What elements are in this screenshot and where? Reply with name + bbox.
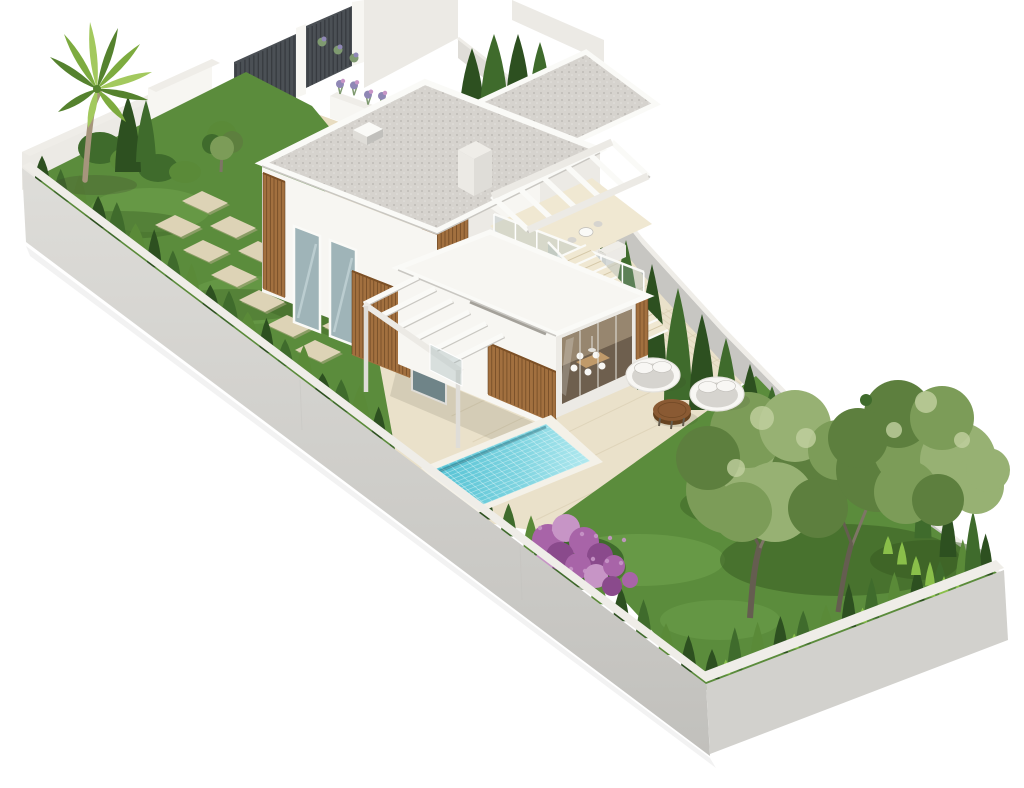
pergola-slat bbox=[612, 142, 648, 176]
flower-cluster bbox=[602, 576, 622, 596]
flower-dot bbox=[591, 557, 595, 561]
flower-dot bbox=[605, 559, 609, 563]
chimney bbox=[458, 141, 492, 196]
canopy-highlight bbox=[727, 459, 745, 477]
dining-chair bbox=[571, 365, 578, 372]
canopy-blob bbox=[788, 478, 848, 538]
plant-behind-fence bbox=[354, 53, 359, 58]
dining-chair bbox=[599, 363, 606, 370]
tall-boundary-wall bbox=[364, 0, 458, 88]
flower-dot bbox=[583, 569, 587, 573]
lawn-highlight bbox=[660, 600, 780, 640]
canopy-blob bbox=[676, 426, 740, 490]
garden-bush bbox=[169, 161, 201, 183]
dining-chair bbox=[585, 369, 592, 376]
daybed-pillow bbox=[635, 363, 654, 374]
plant-behind-fence bbox=[322, 37, 327, 42]
canopy-highlight bbox=[886, 422, 902, 438]
lavender-bloom bbox=[355, 80, 359, 84]
flower-dot bbox=[594, 534, 598, 538]
flower-dot bbox=[622, 538, 626, 542]
table-leg bbox=[671, 421, 672, 429]
flower-cluster bbox=[603, 555, 625, 577]
flower-dot bbox=[608, 536, 612, 540]
canopy-blob bbox=[828, 408, 888, 468]
lavender-bloom bbox=[341, 79, 345, 83]
small-tree-crown bbox=[210, 136, 234, 160]
flower-dot bbox=[538, 526, 542, 530]
terrace-chair bbox=[594, 221, 603, 227]
canopy-highlight bbox=[796, 428, 816, 448]
canopy-blob bbox=[966, 448, 1010, 492]
daybed-pillow bbox=[717, 381, 736, 392]
potted-plant bbox=[860, 394, 872, 406]
isometric-villa-render bbox=[0, 0, 1024, 788]
flower-dot bbox=[552, 528, 556, 532]
canopy-highlight bbox=[954, 432, 970, 448]
plant-behind-fence bbox=[338, 45, 343, 50]
wood-panel bbox=[636, 295, 648, 360]
pendant-light-shade bbox=[588, 348, 596, 352]
wood-slat-cladding bbox=[636, 295, 648, 360]
flower-dot bbox=[566, 530, 570, 534]
fence-pier bbox=[296, 24, 306, 98]
flower-cluster bbox=[622, 572, 638, 588]
cypress-cone bbox=[965, 511, 982, 576]
canopy-blob bbox=[712, 482, 772, 542]
wood-slat-cladding bbox=[263, 172, 285, 298]
daybed-pillow bbox=[653, 362, 672, 373]
terrace-table bbox=[579, 228, 593, 237]
table-leg bbox=[683, 418, 684, 426]
lavender-bloom bbox=[383, 91, 387, 95]
table-leg bbox=[659, 418, 660, 426]
tall-window bbox=[294, 226, 320, 332]
canopy-blob bbox=[912, 474, 964, 526]
palm-crown-center bbox=[93, 85, 101, 93]
canopy-highlight bbox=[915, 391, 937, 413]
flower-dot bbox=[619, 561, 623, 565]
daybed-pillow bbox=[699, 382, 718, 393]
flower-dot bbox=[580, 532, 584, 536]
canopy-highlight bbox=[750, 406, 774, 430]
lavender-bloom bbox=[369, 89, 373, 93]
render-canvas bbox=[0, 0, 1024, 788]
